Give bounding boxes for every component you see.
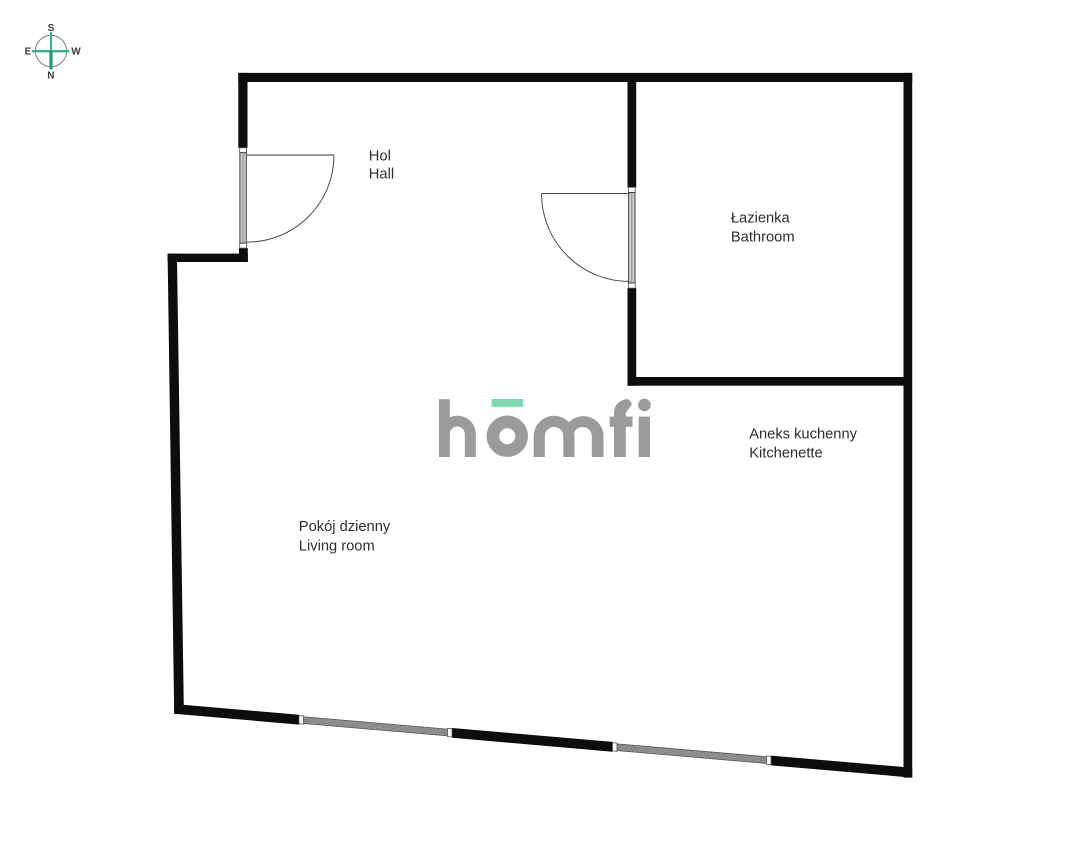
svg-text:Bathroom: Bathroom <box>731 230 795 246</box>
svg-text:Aneks kuchenny: Aneks kuchenny <box>749 427 857 443</box>
svg-text:Hall: Hall <box>369 167 394 183</box>
svg-text:E: E <box>25 47 32 58</box>
svg-text:W: W <box>71 47 81 58</box>
svg-text:Hol: Hol <box>369 148 391 164</box>
svg-text:N: N <box>47 71 54 82</box>
svg-text:Pokój dzienny: Pokój dzienny <box>299 519 391 535</box>
svg-text:Kitchenette: Kitchenette <box>749 446 823 462</box>
svg-text:Łazienka: Łazienka <box>731 211 791 227</box>
svg-text:Living room: Living room <box>299 538 375 554</box>
svg-text:S: S <box>48 23 55 34</box>
